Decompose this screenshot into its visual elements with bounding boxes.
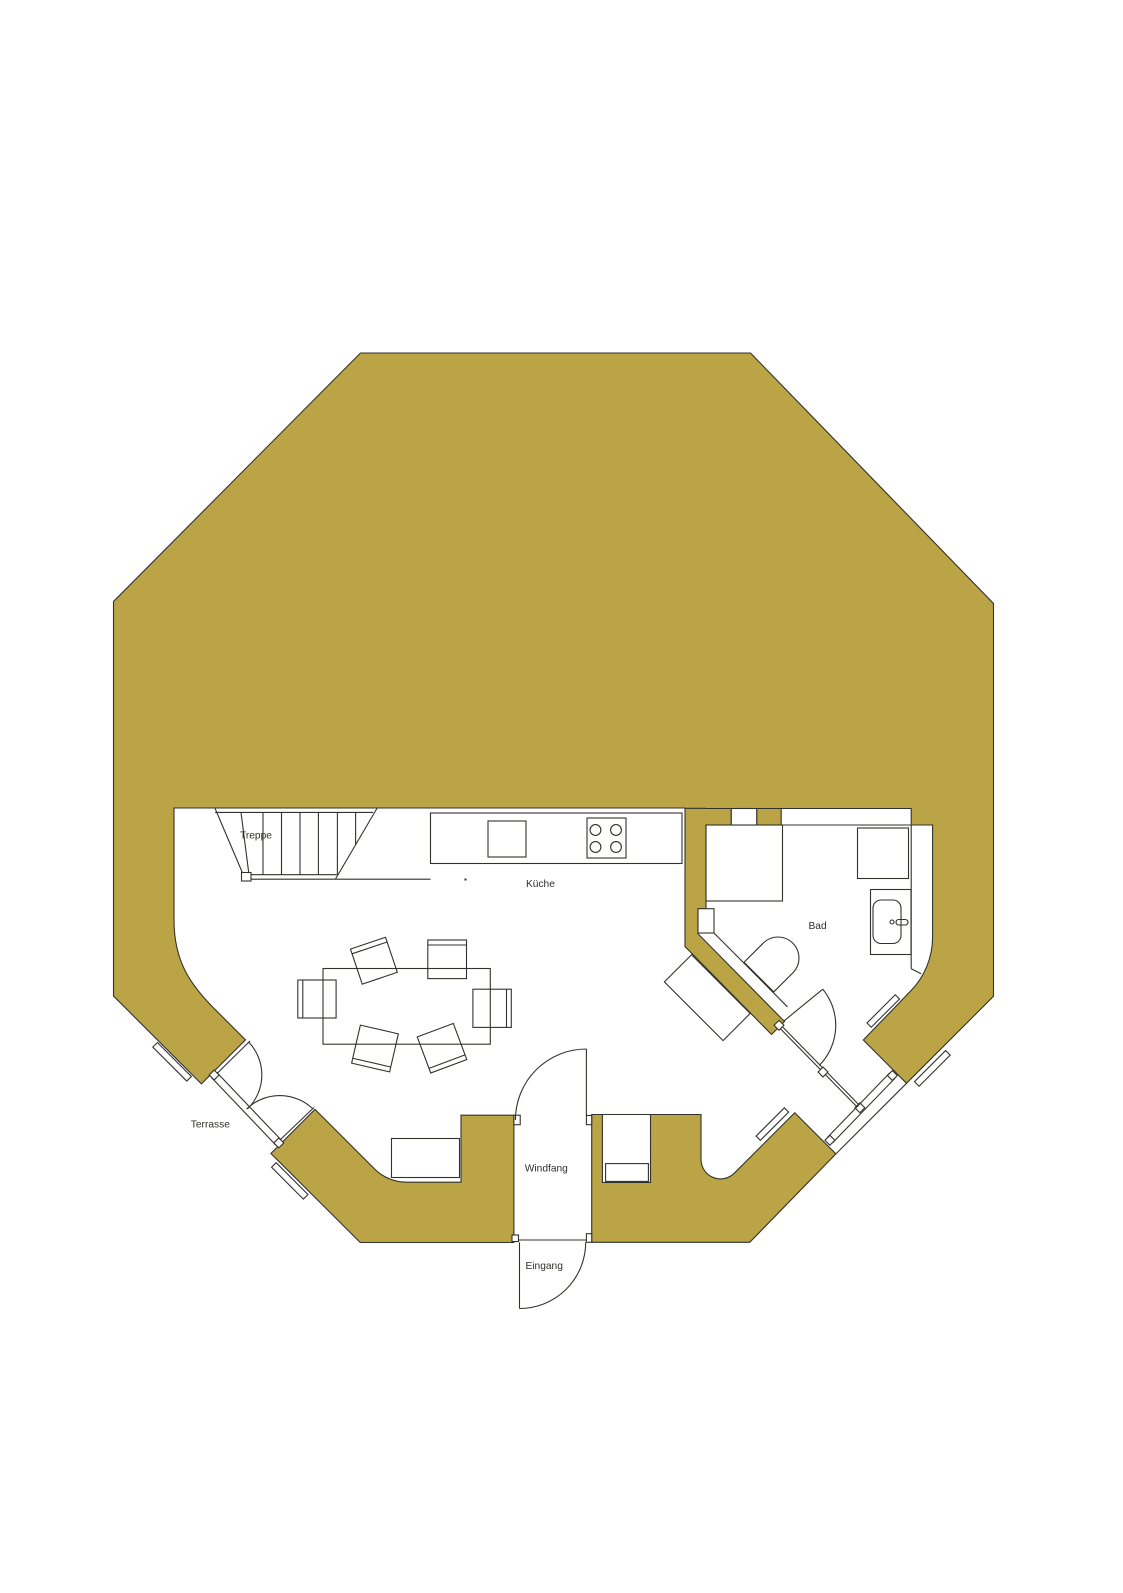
svg-text:Bad: Bad <box>809 921 827 932</box>
svg-text:Treppe: Treppe <box>240 831 272 842</box>
svg-text:Terrasse: Terrasse <box>191 1120 230 1131</box>
svg-text:Windfang: Windfang <box>525 1164 568 1175</box>
svg-text:Eingang: Eingang <box>526 1261 564 1272</box>
svg-text:Küche: Küche <box>526 879 555 890</box>
